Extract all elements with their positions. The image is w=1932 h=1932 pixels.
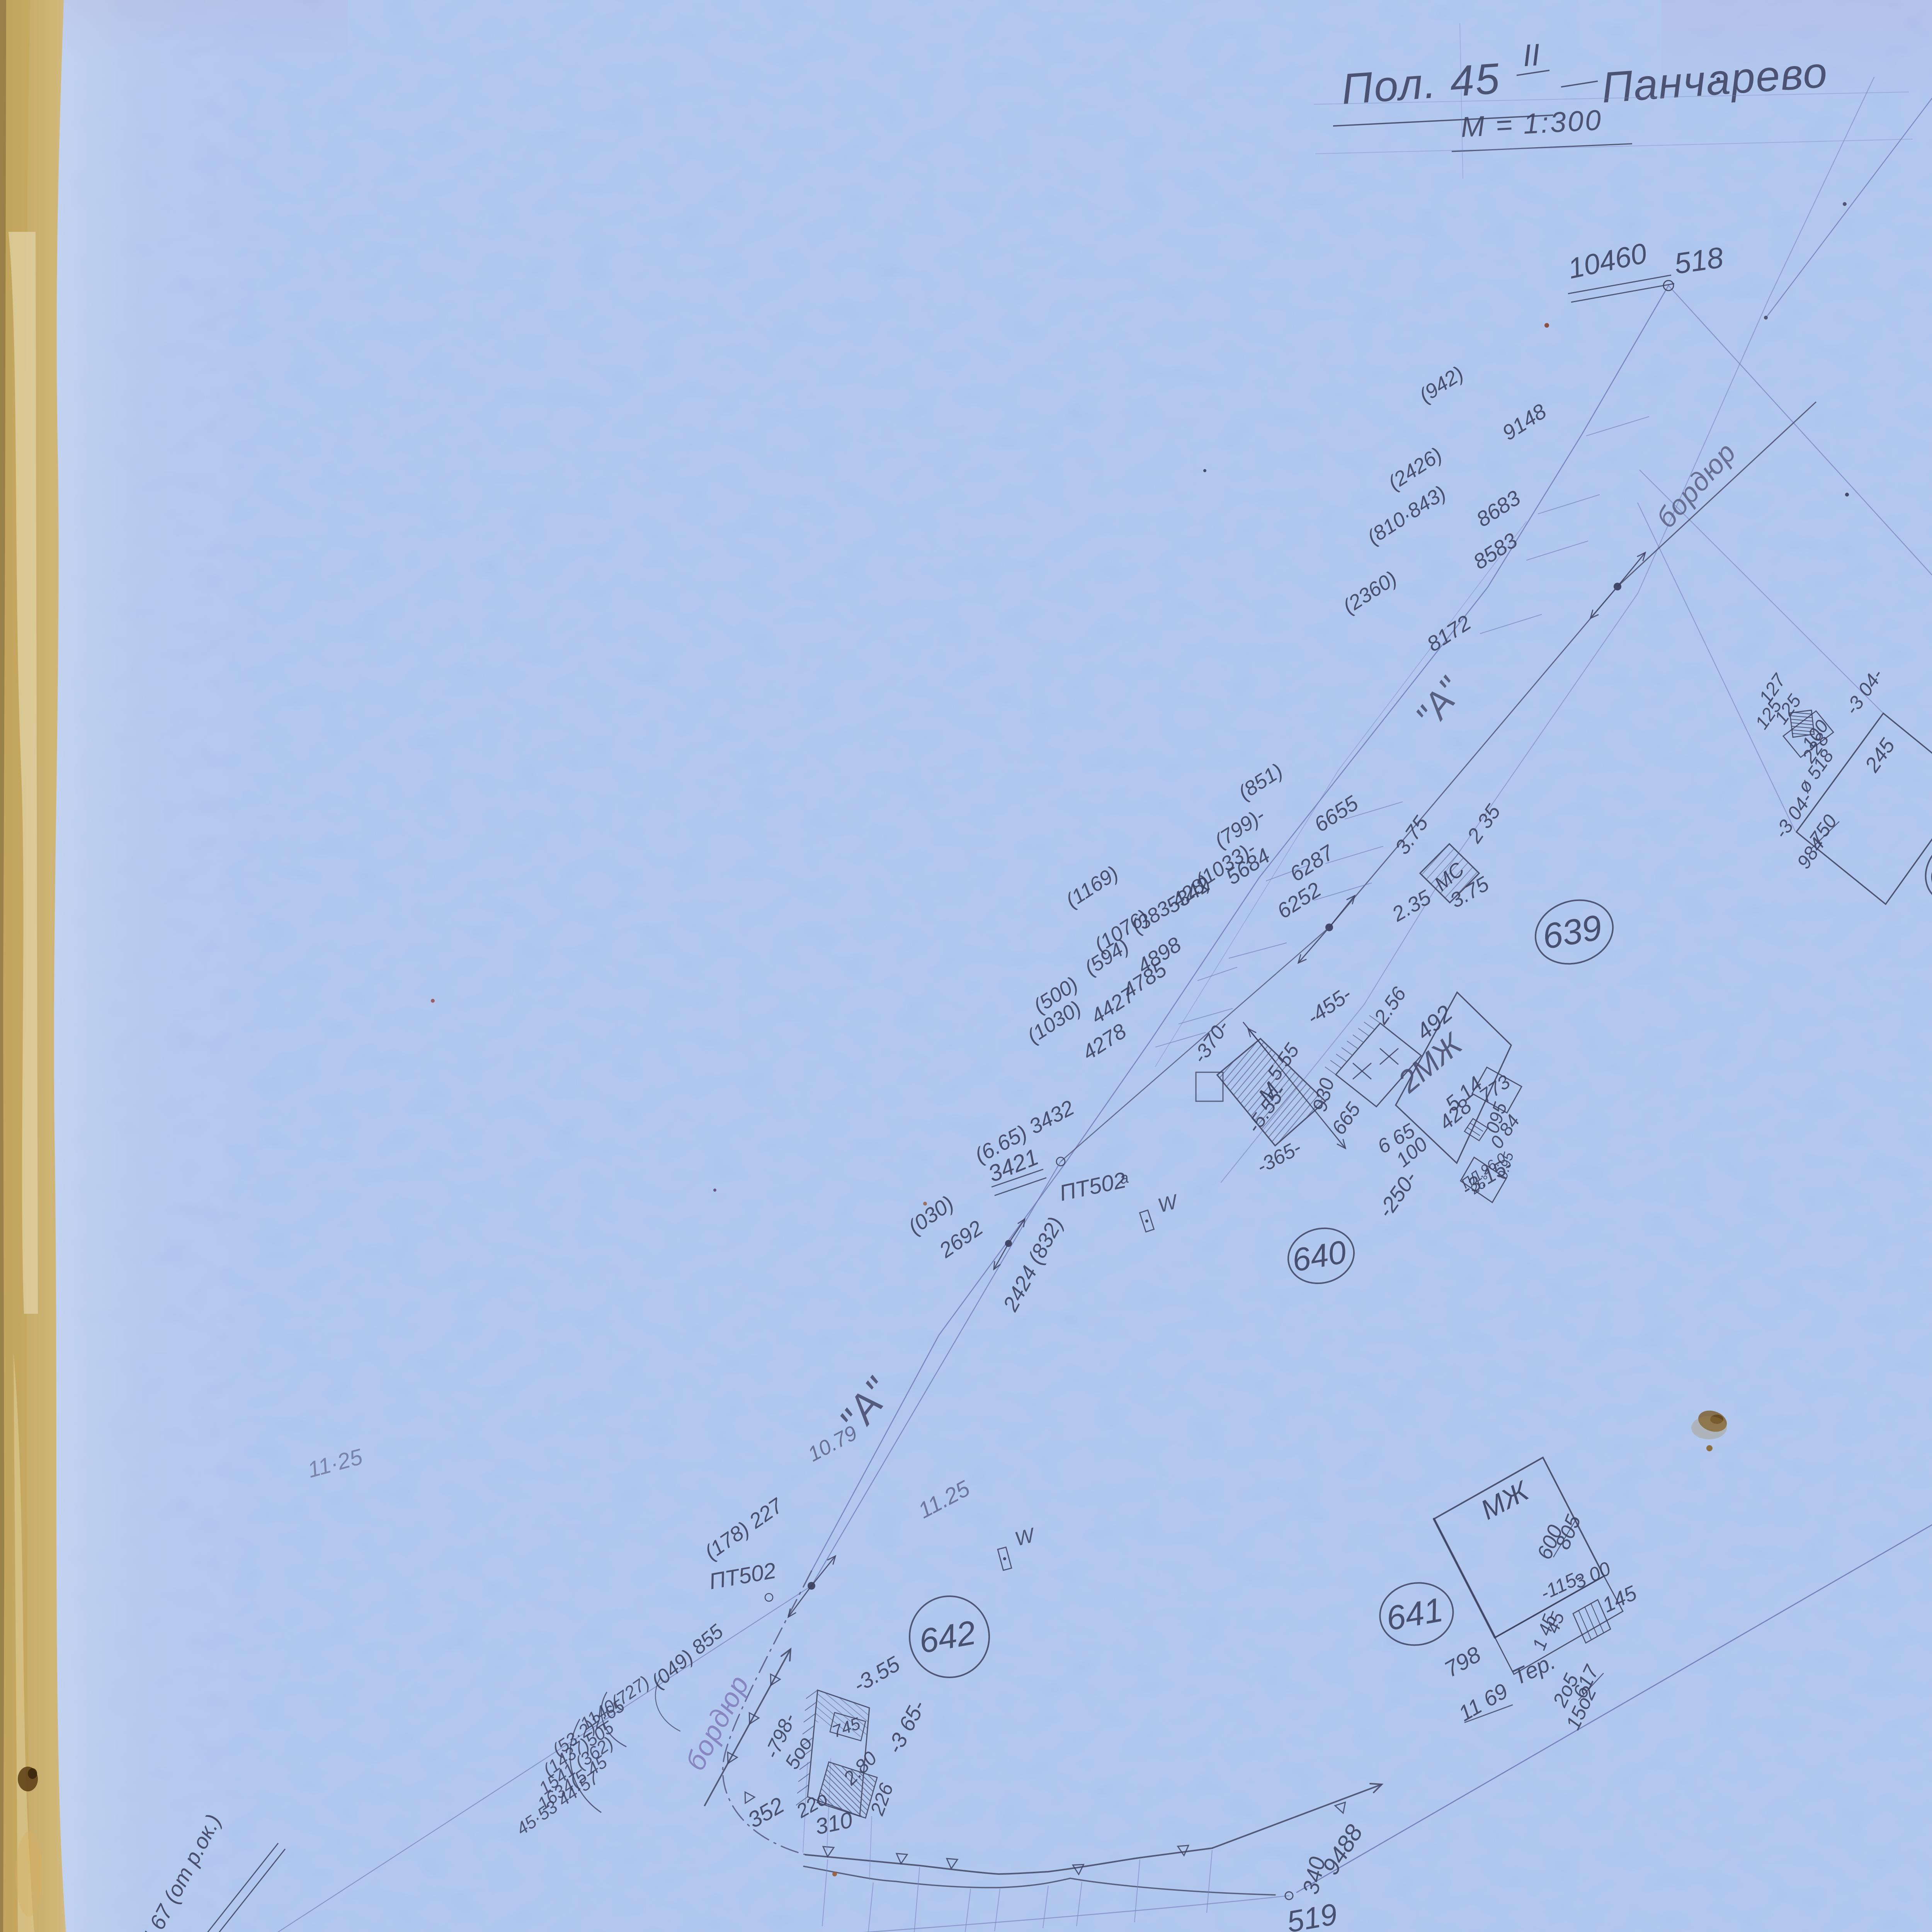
svg-text:II: II (1522, 37, 1541, 73)
svg-text:518: 518 (1672, 241, 1725, 281)
